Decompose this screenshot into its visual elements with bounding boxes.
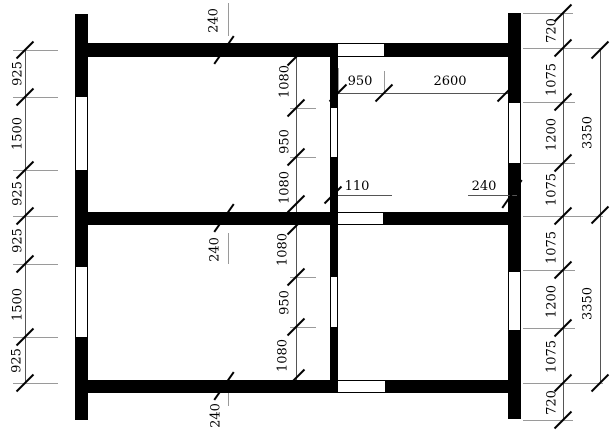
dimension-line-right-outer <box>600 50 601 383</box>
dim-label: 1080 <box>278 58 293 106</box>
dim-label-total: 3350 <box>581 109 596 157</box>
exterior-wall-bottom <box>88 380 508 393</box>
dim-label: 950 <box>278 279 293 327</box>
wall-thickness-label: 240 <box>207 0 222 45</box>
dim-label: 925 <box>11 50 26 98</box>
window-opening-right-lower <box>508 272 521 330</box>
dim-label: 1075 <box>545 333 560 381</box>
window-opening-right-upper <box>508 103 521 163</box>
dim-label: 1200 <box>545 278 560 326</box>
partition-thickness-label: 110 <box>333 179 381 194</box>
dim-label-total: 3350 <box>581 280 596 328</box>
right-wall-thickness-label: 240 <box>460 179 508 194</box>
dim-label: 2600 <box>426 74 474 89</box>
opening-top-wall <box>338 43 384 57</box>
dim-label: 925 <box>11 170 26 218</box>
extension-line <box>228 3 229 36</box>
wall-thickness-label: 240 <box>208 226 223 274</box>
opening-partition-lower <box>330 277 338 327</box>
dim-label: 1200 <box>545 111 560 159</box>
exterior-wall-right <box>508 13 521 419</box>
dim-label: 720 <box>545 7 560 55</box>
dim-label: 1500 <box>11 281 26 329</box>
dim-label: 720 <box>545 379 560 427</box>
dim-label: 1075 <box>545 166 560 214</box>
dim-label: 925 <box>11 217 26 265</box>
opening-bottom-wall <box>338 380 385 393</box>
opening-middle-wall <box>338 212 383 225</box>
dim-label: 1080 <box>276 332 291 380</box>
dimension-line-110 <box>338 195 392 196</box>
dim-label: 925 <box>10 337 25 385</box>
extension-line <box>228 233 229 264</box>
dim-label: 1075 <box>545 56 560 104</box>
dimension-line-top-room <box>338 93 508 94</box>
extension-line <box>228 393 229 406</box>
dimension-line-inner-lower <box>296 226 297 380</box>
dim-label: 1075 <box>545 224 560 272</box>
extension-line <box>523 163 575 164</box>
wall-thickness-label: 240 <box>209 392 224 434</box>
dim-label: 1500 <box>11 110 26 158</box>
window-opening-left-upper <box>75 97 88 170</box>
dim-label: 950 <box>336 74 384 89</box>
extension-line <box>523 328 575 329</box>
exterior-wall-left <box>75 14 88 420</box>
floor-plan-canvas: 925 1500 925 925 1500 925 1080 950 1080 … <box>0 0 616 434</box>
opening-partition-upper <box>330 108 338 157</box>
window-opening-left-lower <box>75 267 88 337</box>
partition-wall <box>330 57 338 380</box>
dim-label: 950 <box>278 118 293 166</box>
dimension-line-inner-upper <box>296 57 297 212</box>
dim-label: 1080 <box>276 226 291 274</box>
dim-label: 1080 <box>278 164 293 212</box>
